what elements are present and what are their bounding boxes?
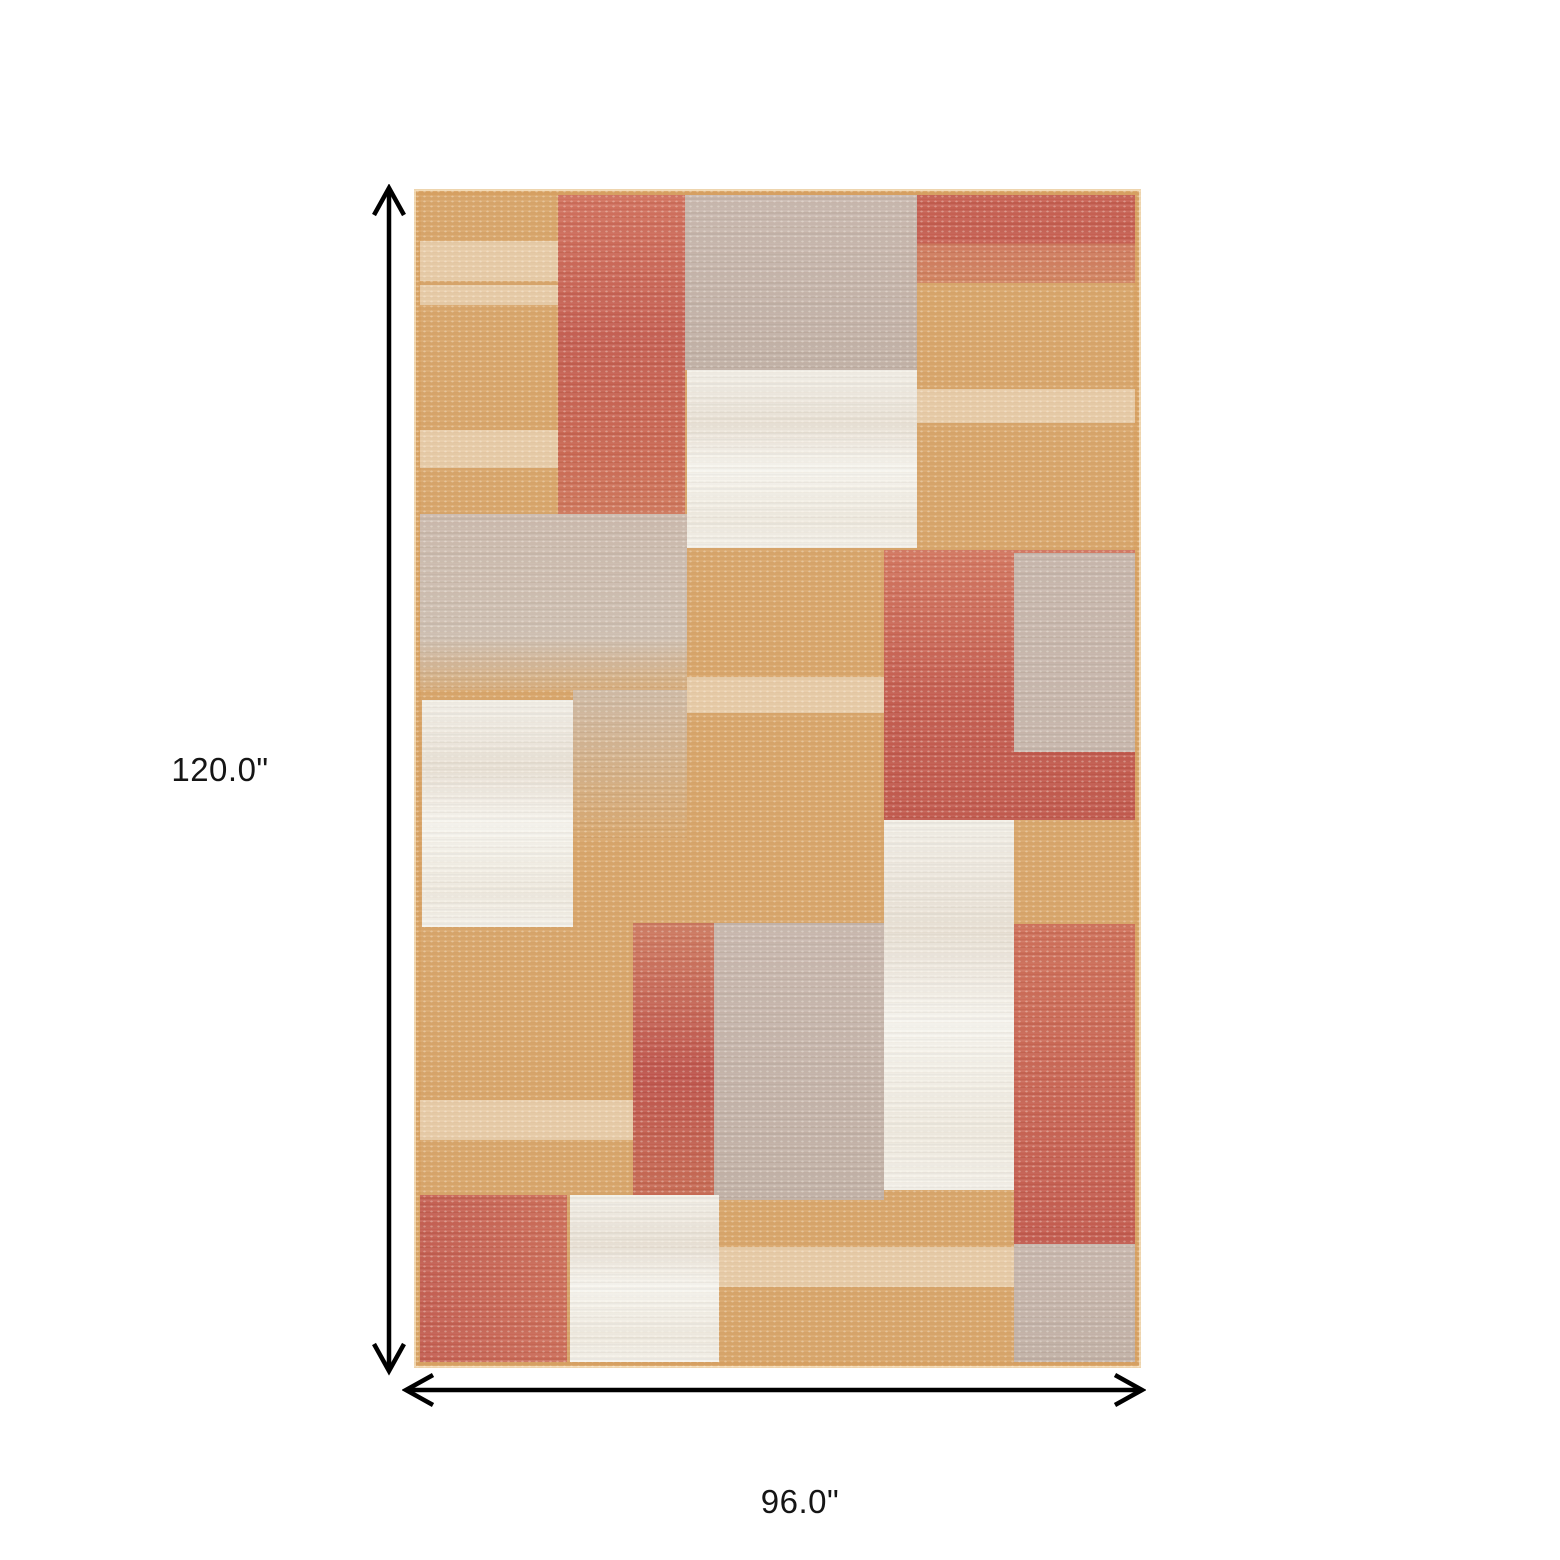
rug-patch-coral-mid-column [633,923,714,1200]
rug-streak-top-left-1 [420,241,559,281]
rug-patch-taupe-mid-right [1014,553,1135,752]
rug-streak-bottom-center [719,1247,1014,1287]
rug-patch-beige-left-mid [420,514,687,690]
rug-patch-coral-bottom-right [1014,924,1135,1244]
rug-patch-coral-top-column [558,195,685,514]
rug-patch-beige-left-fade [573,690,687,840]
width-label: 96.0" [700,1480,900,1524]
rug-patch-white-right-column [884,820,1014,1190]
rug-patch-white-top-middle [687,370,917,548]
rug-patch-white-bottom [570,1195,719,1362]
rug-streak-center [687,677,884,713]
rug-patch-taupe-top-middle [685,195,917,370]
rug-patch-white-left [422,700,573,927]
product-dimension-diagram: 120.0" 96.0" [0,0,1560,1560]
width-dimension-arrow [402,1372,1146,1408]
height-dimension-arrow [371,184,407,1376]
rug-streak-bottom-left [420,1100,633,1140]
rug-streak-top-left-2 [420,285,559,305]
rug-patch-coral-bottom-left [420,1195,567,1362]
rug-patch-coral-top-right [917,195,1135,283]
rug-streak-top-left-3 [420,430,559,468]
rug-image [414,189,1141,1368]
rug-streak-top-right [917,389,1135,423]
height-label: 120.0" [120,748,320,792]
rug-patch-taupe-mid-block [714,923,884,1200]
rug-patch-taupe-bottom-right [1014,1244,1135,1362]
